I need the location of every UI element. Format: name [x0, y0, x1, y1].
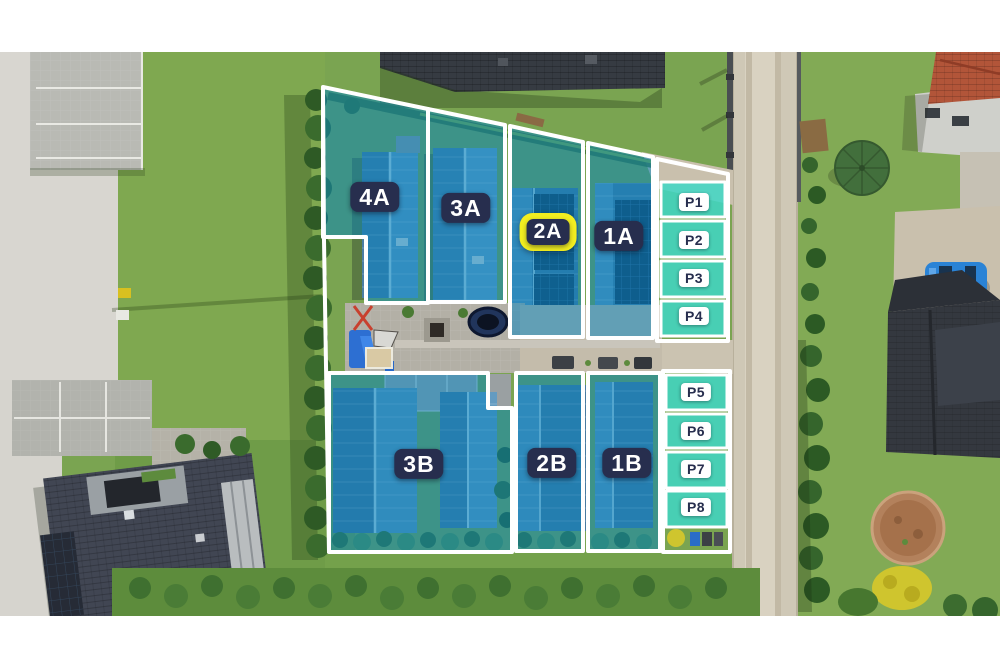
unit-label-1a[interactable]: 1A	[594, 221, 643, 251]
parking-label-p4[interactable]: P4	[679, 307, 709, 325]
aerial-site-plan: 4A 3A 2A 1A 3B 2B 1B P1 P2 P3 P4 P5 P6 P…	[0, 0, 1000, 667]
unit-label-3a[interactable]: 3A	[441, 193, 490, 223]
parking-label-p6[interactable]: P6	[681, 422, 711, 440]
parking-label-p7[interactable]: P7	[681, 460, 711, 478]
unit-label-2a[interactable]: 2A	[527, 219, 570, 245]
unit-label-3b[interactable]: 3B	[394, 449, 443, 479]
parking-label-p3[interactable]: P3	[679, 269, 709, 287]
parking-label-p1[interactable]: P1	[679, 193, 709, 211]
unit-label-2a-highlight[interactable]: 2A	[520, 213, 577, 251]
unit-label-2b[interactable]: 2B	[527, 448, 576, 478]
overlay-labels: 4A 3A 2A 1A 3B 2B 1B P1 P2 P3 P4 P5 P6 P…	[0, 0, 1000, 667]
parking-label-p8[interactable]: P8	[681, 498, 711, 516]
parking-label-p5[interactable]: P5	[681, 383, 711, 401]
unit-label-1b[interactable]: 1B	[602, 448, 651, 478]
parking-label-p2[interactable]: P2	[679, 231, 709, 249]
unit-label-4a[interactable]: 4A	[350, 182, 399, 212]
